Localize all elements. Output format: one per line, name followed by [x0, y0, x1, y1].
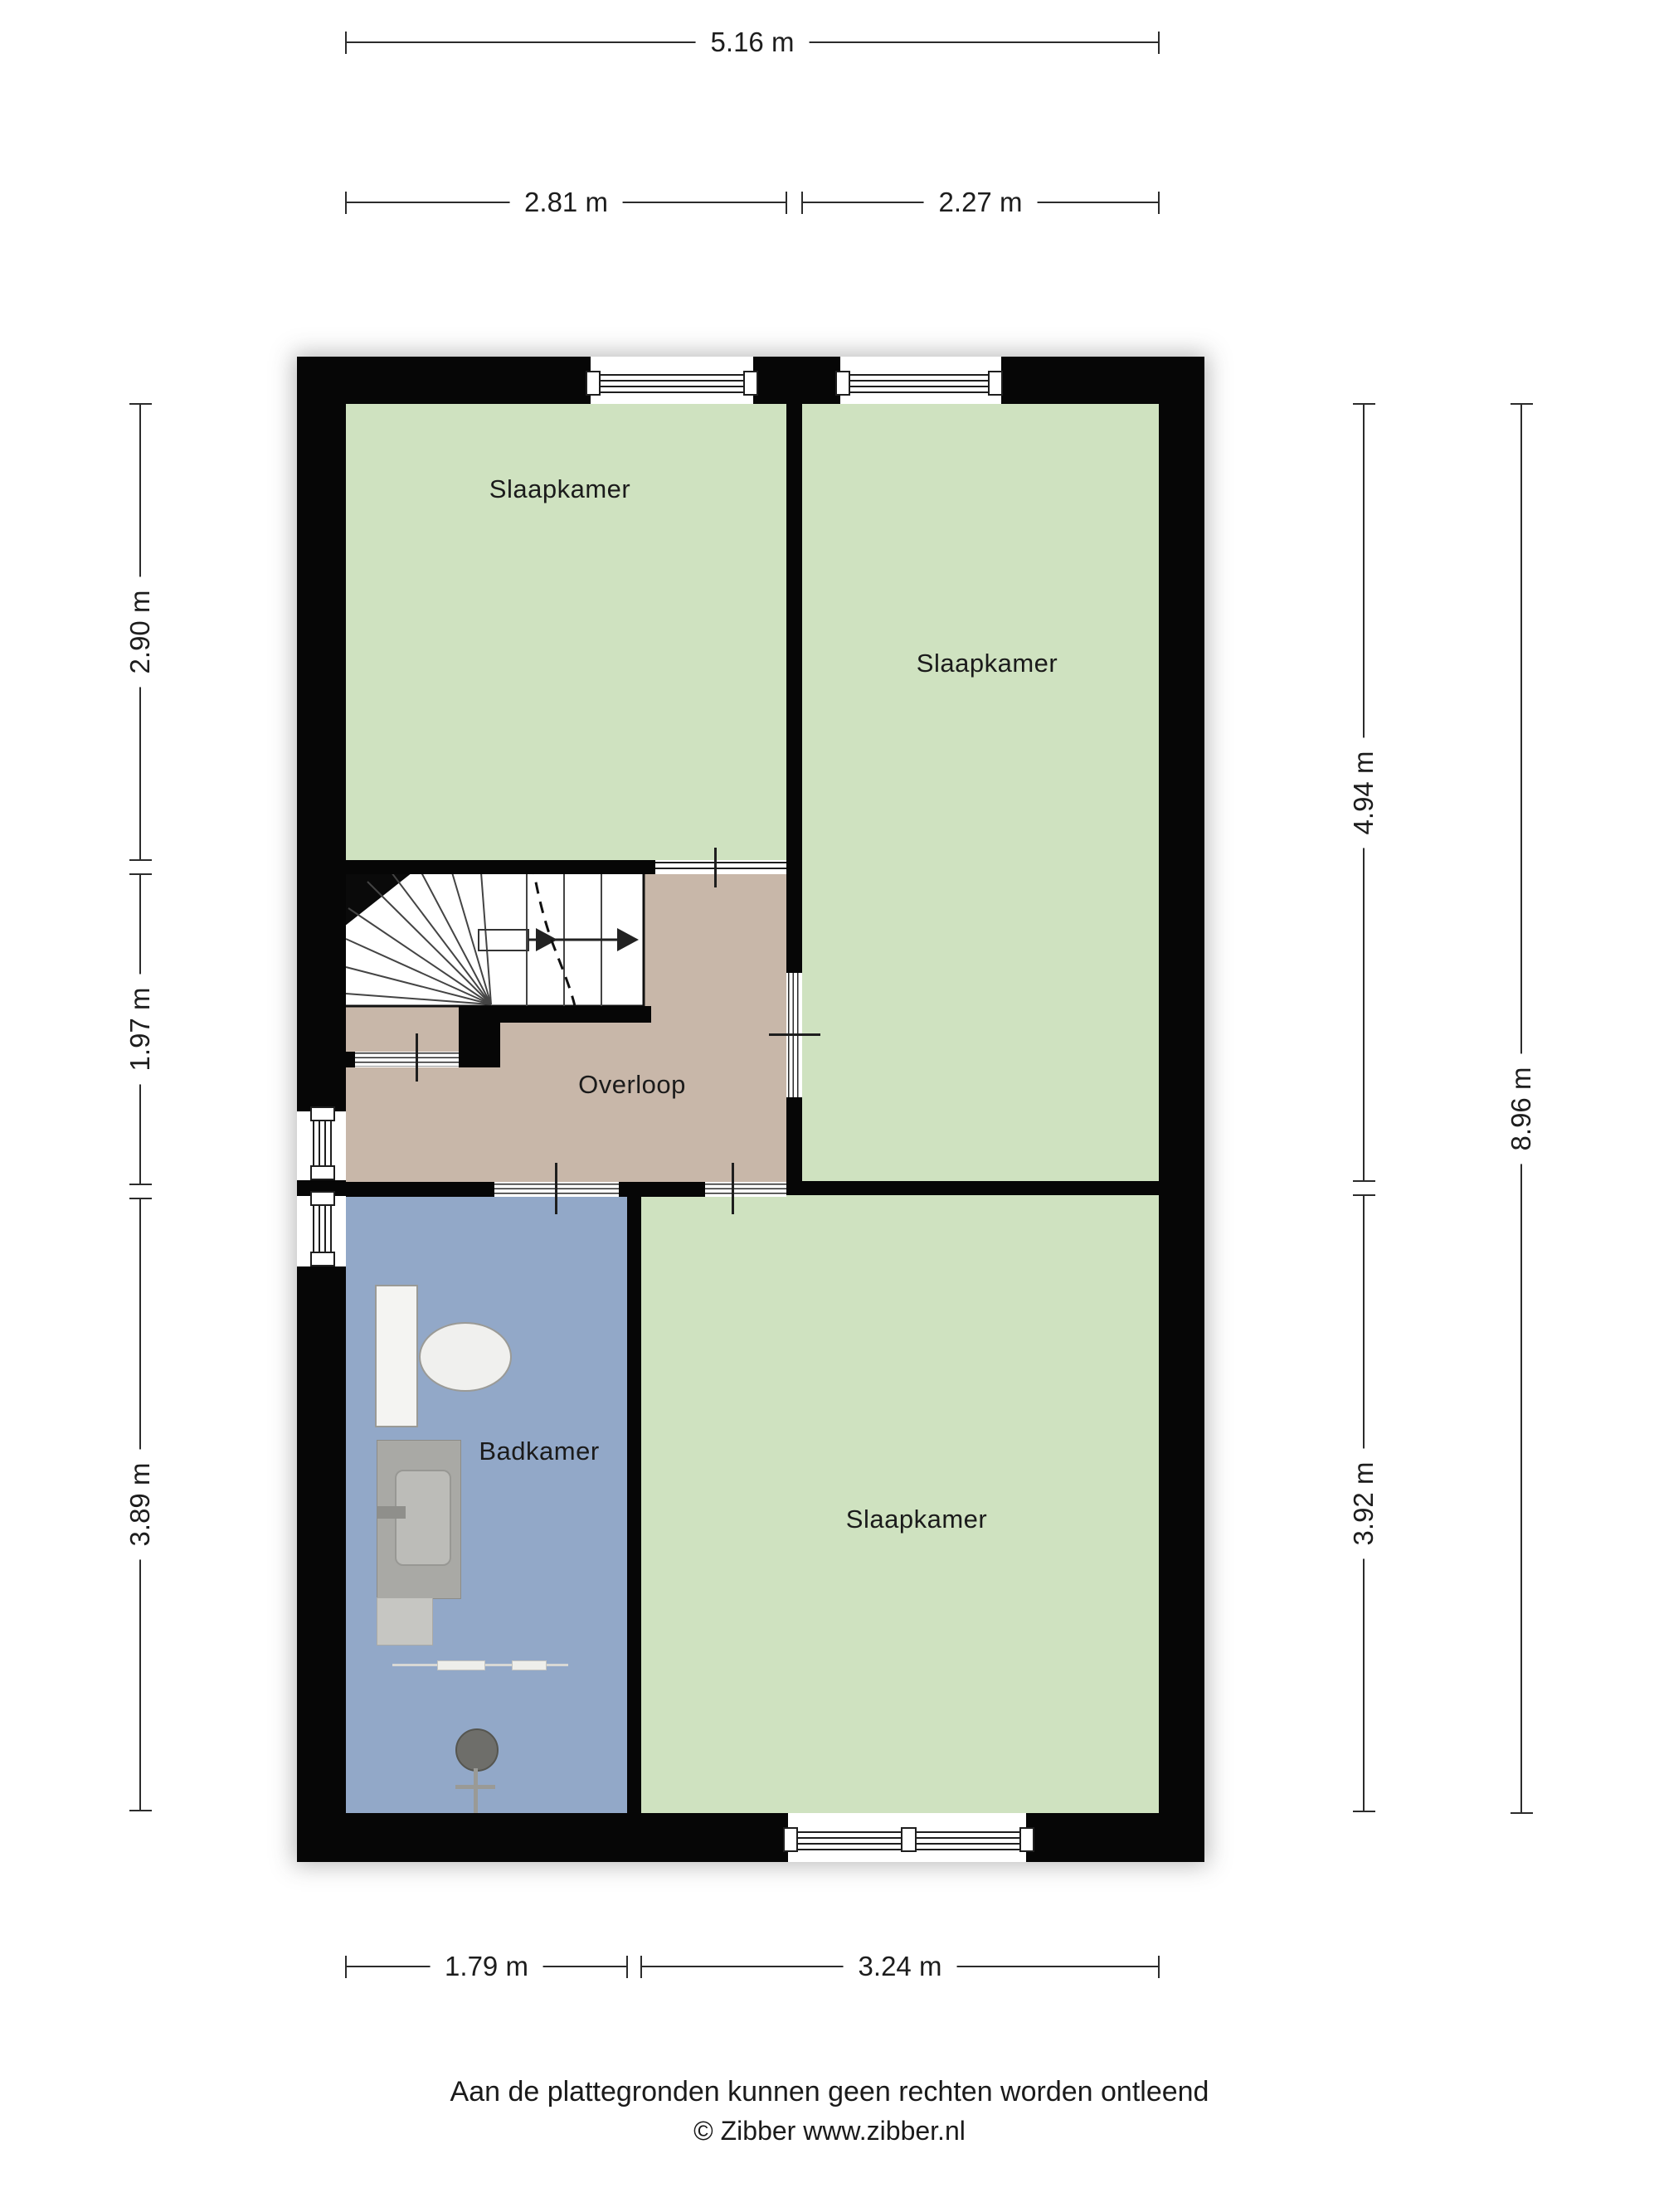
door-center-tick	[769, 1033, 820, 1036]
dim-label: 3.24 m	[844, 1949, 957, 1984]
dim-label: 3.89 m	[123, 1450, 158, 1560]
wall-landing-bathroom-left	[346, 1182, 494, 1197]
stair-railing-icon	[355, 1052, 459, 1067]
dim-top-total: 5.16 m	[346, 41, 1159, 43]
window-frame-cap	[310, 1191, 335, 1206]
wall-bathroom-bedroom	[627, 1197, 641, 1813]
window-frame-cap	[783, 1827, 798, 1852]
wall-bottom-left	[297, 1813, 788, 1862]
window-center-tick	[714, 848, 717, 887]
room-label-bedroom-top-right: Slaapkamer	[917, 649, 1058, 678]
room-label-bathroom: Badkamer	[479, 1437, 599, 1466]
dim-label: 2.81 m	[509, 185, 623, 220]
dim-label: 2.27 m	[924, 185, 1038, 220]
dim-top-left: 2.81 m	[346, 202, 786, 203]
footer-disclaimer: Aan de plattegronden kunnen geen rechten…	[0, 2076, 1659, 2108]
dim-label: 8.96 m	[1504, 1053, 1539, 1164]
window-frame-cap	[310, 1252, 335, 1266]
window-frame-cap	[586, 371, 601, 396]
door-opening-bedroom-bottom	[705, 1182, 786, 1197]
railing-center-tick	[416, 1033, 418, 1082]
window-frame-cap	[310, 1106, 335, 1121]
wall-bedroom-stairs	[346, 860, 655, 874]
interior-window-symbol	[655, 860, 786, 874]
dim-label: 4.94 m	[1346, 737, 1381, 848]
floorplan-page: Slaapkamer Slaapkamer Overloop Badkamer …	[0, 0, 1659, 2212]
wall-bedrooms-horizontal	[786, 1181, 1159, 1195]
railing-end-post	[342, 1052, 355, 1067]
footer-copyright: © Zibber www.zibber.nl	[0, 2116, 1659, 2146]
window-frame-cap	[988, 371, 1003, 396]
dim-left-top: 2.90 m	[139, 404, 141, 860]
door-center-tick	[732, 1163, 734, 1214]
dim-right-total: 8.96 m	[1520, 404, 1522, 1813]
room-label-bedroom-top-left: Slaapkamer	[489, 474, 630, 504]
wall-right	[1159, 357, 1204, 1862]
dim-right-lower: 3.92 m	[1363, 1195, 1365, 1811]
wall-left-upper	[297, 357, 346, 1111]
wall-left-lower	[297, 1266, 346, 1862]
window-frame-cap	[1019, 1827, 1034, 1852]
window-symbol	[840, 357, 1001, 404]
window-mullion-cap	[901, 1827, 917, 1852]
wall-landing-bathroom-right	[619, 1182, 641, 1197]
window-frame-cap	[743, 371, 758, 396]
dim-label: 3.92 m	[1346, 1448, 1381, 1558]
dim-right-upper: 4.94 m	[1363, 404, 1365, 1181]
dim-label: 1.79 m	[430, 1949, 543, 1984]
dim-label: 2.90 m	[123, 577, 158, 688]
room-label-landing: Overloop	[578, 1070, 686, 1100]
dim-left-middle: 1.97 m	[139, 874, 141, 1184]
window-frame-cap	[310, 1165, 335, 1180]
window-symbol	[591, 357, 753, 404]
wall-top-pier	[753, 357, 840, 404]
dim-bottom-right: 3.24 m	[641, 1966, 1159, 1967]
dim-label: 1.97 m	[123, 975, 158, 1085]
wall-center-vertical-upper	[786, 404, 802, 973]
wall-center-vertical-lower	[786, 1097, 802, 1182]
wall-landing-bedroom-left	[641, 1182, 705, 1197]
dim-label: 5.16 m	[696, 25, 810, 60]
dim-bottom-left: 1.79 m	[346, 1966, 627, 1967]
dim-top-right: 2.27 m	[802, 202, 1159, 203]
room-label-bedroom-bottom-right: Slaapkamer	[846, 1505, 987, 1534]
staircase-icon	[297, 357, 1204, 1862]
wall-bottom-right	[1026, 1813, 1204, 1862]
door-center-tick	[555, 1163, 557, 1214]
wall-stair-stub	[459, 1006, 500, 1067]
dim-left-bottom: 3.89 m	[139, 1198, 141, 1811]
window-frame-cap	[835, 371, 850, 396]
